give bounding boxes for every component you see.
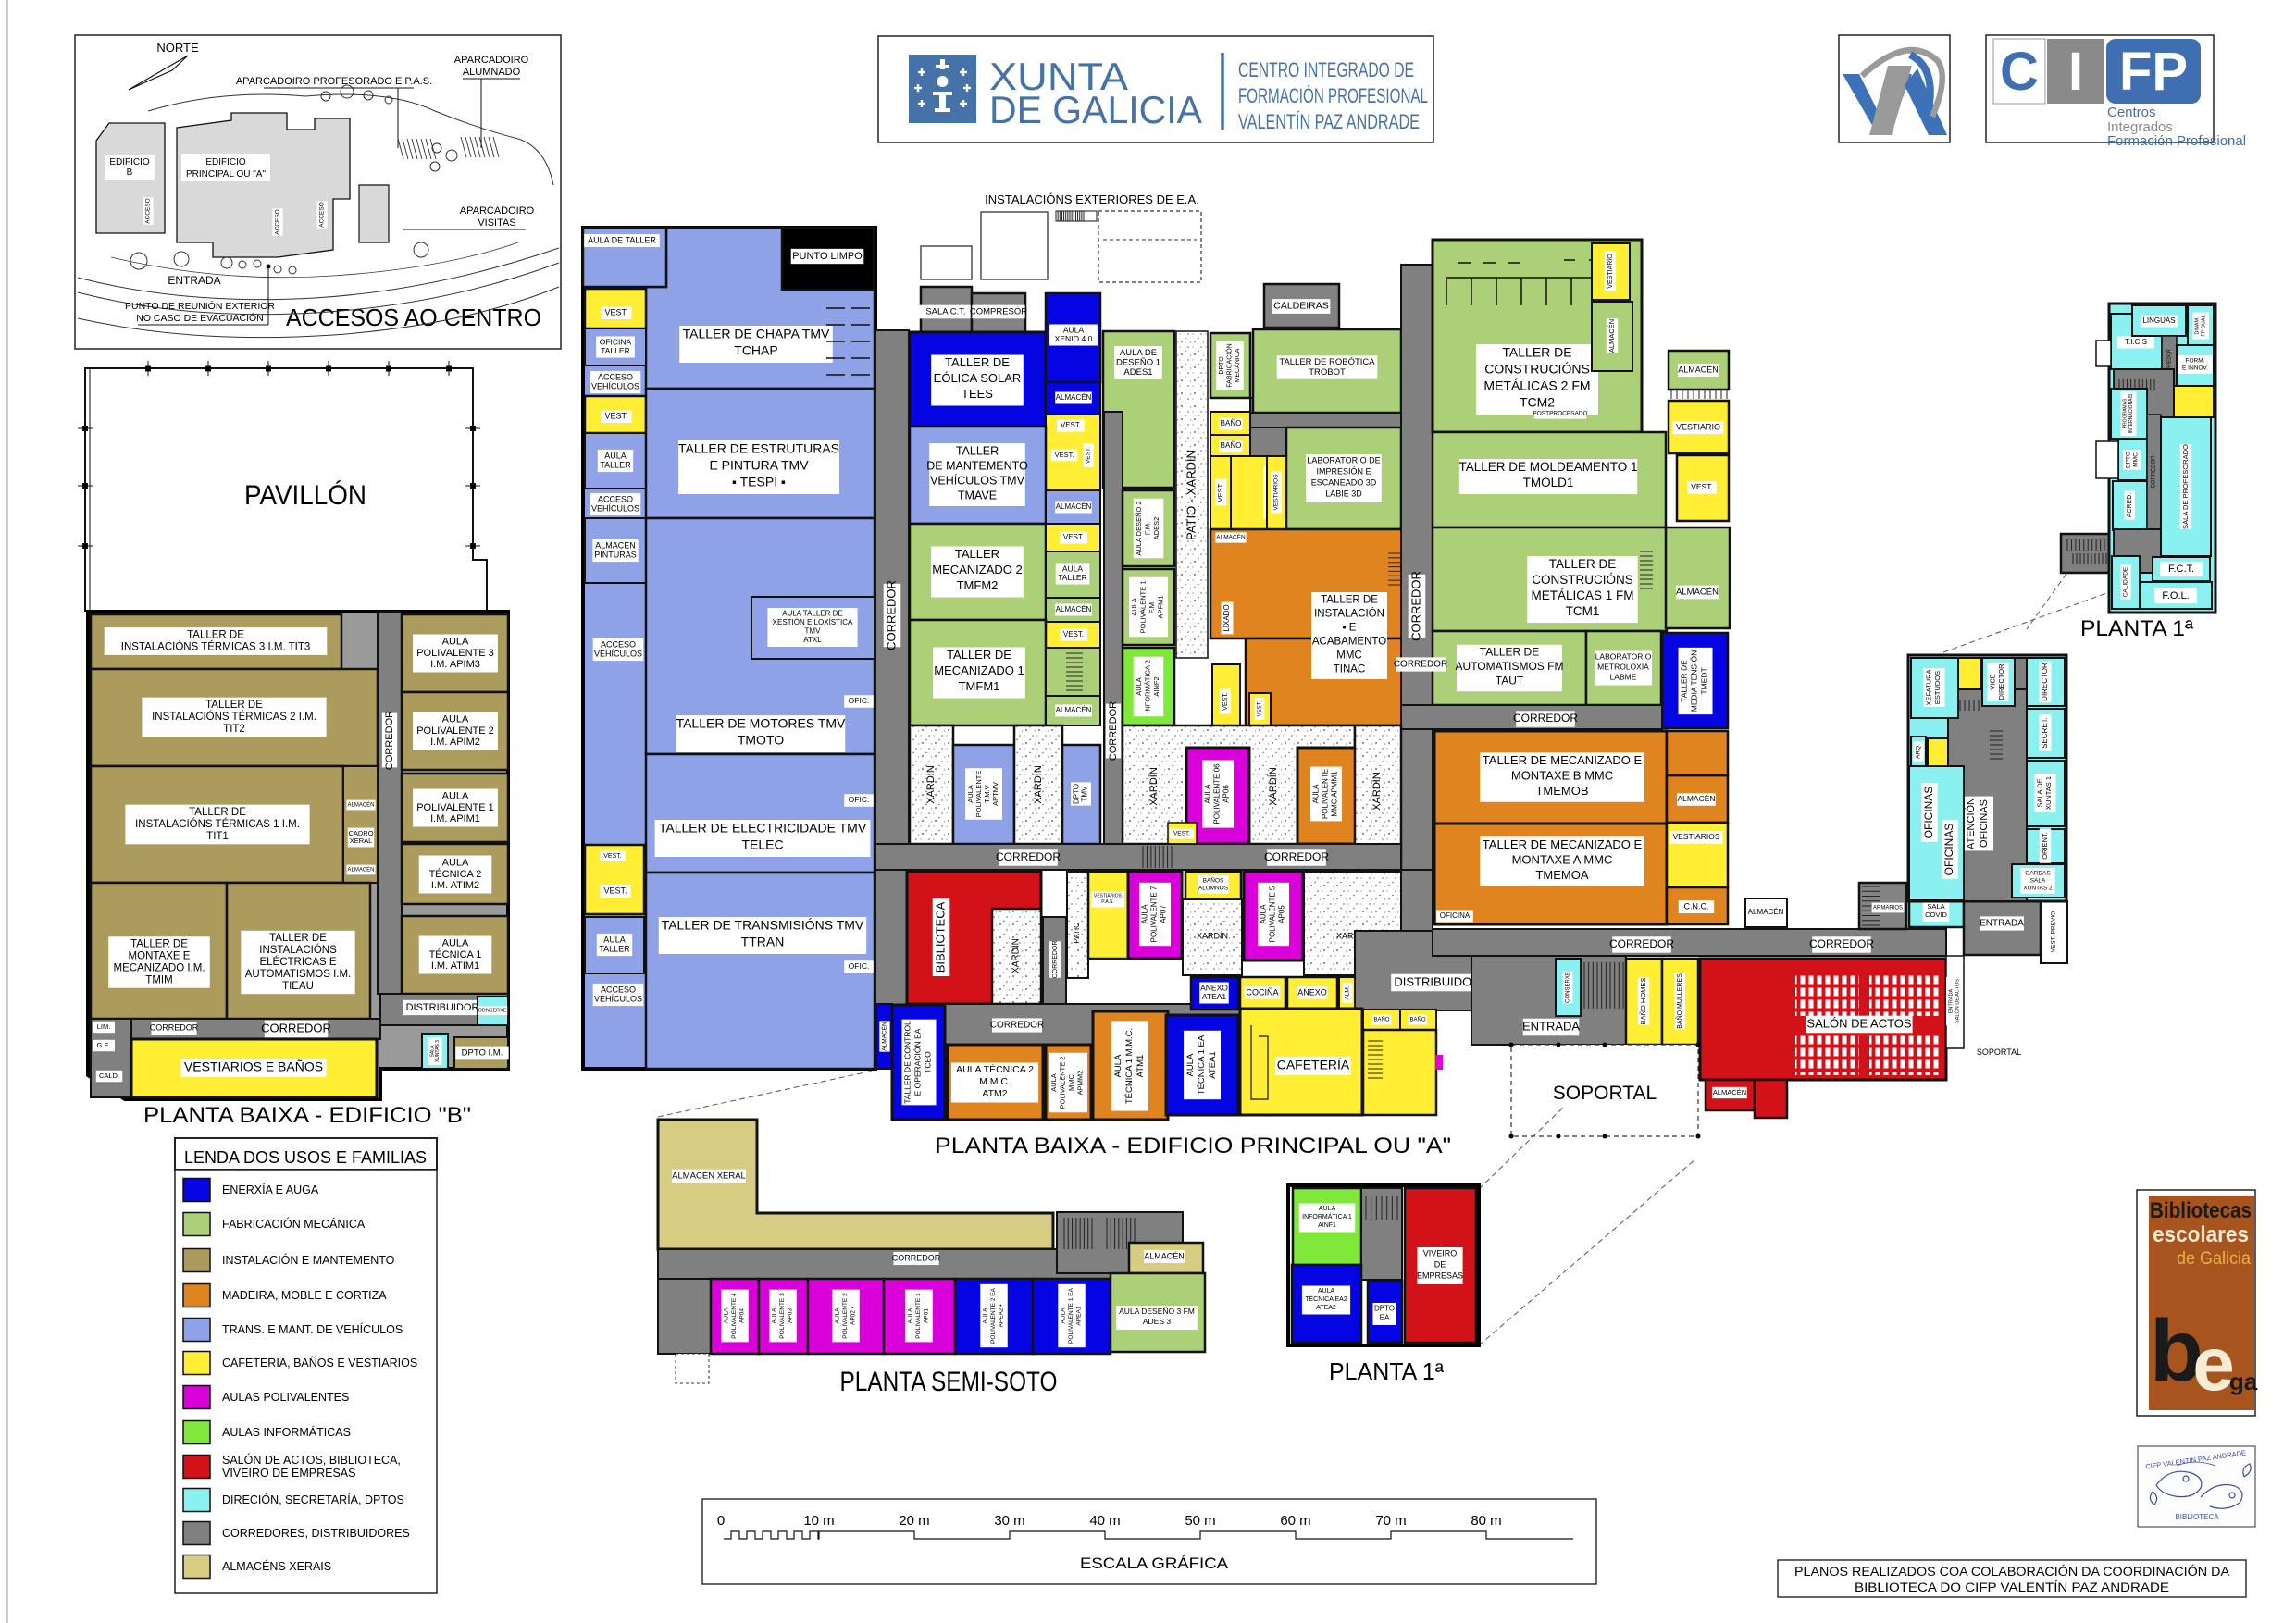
svg-text:TALLER DE: TALLER DE [1321, 594, 1378, 605]
svg-text:BAÑO: BAÑO [1221, 419, 1242, 427]
svg-text:AP04: AP04 [739, 1308, 746, 1323]
svg-text:ESCALA GRÁFICA: ESCALA GRÁFICA [1080, 1555, 1229, 1572]
svg-text:AULA DE TALLER: AULA DE TALLER [588, 235, 656, 244]
svg-text:ALMACÉN: ALMACÉN [347, 867, 374, 873]
svg-text:POLIVALENTE 1: POLIVALENTE 1 [416, 802, 494, 813]
svg-text:PLANOS REALIZADOS COA COLABORA: PLANOS REALIZADOS COA COLABORACIÓN DA CO… [1794, 1565, 2229, 1579]
svg-text:FP DUAL: FP DUAL [2202, 315, 2207, 336]
svg-text:ATENCIÓN: ATENCIÓN [1965, 798, 1977, 849]
svg-text:F.M.: F.M. [1148, 601, 1156, 613]
svg-text:CORREDOR: CORREDOR [1264, 850, 1329, 863]
svg-text:BAÑO HOMES: BAÑO HOMES [1639, 978, 1647, 1025]
svg-text:AUTOMATISMOS I.M.: AUTOMATISMOS I.M. [245, 969, 352, 980]
svg-text:ATM1: ATM1 [1136, 1055, 1146, 1078]
svg-text:EÓLICA SOLAR: EÓLICA SOLAR [934, 371, 1022, 385]
svg-text:EDIFICIO: EDIFICIO [205, 157, 246, 167]
svg-text:ARQ.: ARQ. [1916, 744, 1922, 759]
svg-text:ACABAMENTO: ACABAMENTO [1312, 636, 1386, 647]
svg-text:ALMACÉN: ALMACÉN [1748, 908, 1784, 916]
svg-text:TALLER DE: TALLER DE [269, 933, 327, 944]
svg-text:INTERNACIONAIS: INTERNACIONAIS [2128, 393, 2134, 433]
svg-text:AUTOMATISMOS FM: AUTOMATISMOS FM [1456, 660, 1564, 673]
svg-text:ALMACÉN: ALMACÉN [1676, 587, 1719, 597]
svg-text:I.M. APIM1: I.M. APIM1 [430, 813, 480, 824]
svg-text:PUNTO DE REUNIÓN EXTERIOR: PUNTO DE REUNIÓN EXTERIOR [125, 300, 275, 312]
svg-text:XEFATURA: XEFATURA [1925, 669, 1933, 705]
svg-text:COCIÑA: COCIÑA [1246, 987, 1278, 997]
svg-text:TALLER DE: TALLER DE [189, 807, 246, 818]
svg-text:CONSERXE: CONSERXE [1566, 972, 1571, 1003]
svg-text:ATXL: ATXL [803, 636, 822, 644]
svg-text:AULA: AULA [1185, 1053, 1196, 1076]
svg-text:AULA: AULA [442, 938, 469, 949]
svg-text:XENIO 4.0: XENIO 4.0 [1055, 334, 1093, 343]
svg-text:20 m: 20 m [899, 1513, 929, 1529]
svg-text:TMEMOB: TMEMOB [1535, 784, 1588, 798]
svg-text:BIBLIOTECA DO CIFP VALENTÍN PA: BIBLIOTECA DO CIFP VALENTÍN PAZ ANDRADE [1855, 1580, 2169, 1594]
svg-text:ADES1: ADES1 [1123, 367, 1152, 378]
svg-text:DPTO: DPTO [1374, 1305, 1395, 1313]
svg-text:I.M. ATIM1: I.M. ATIM1 [431, 960, 479, 972]
svg-text:TIEAU: TIEAU [282, 981, 314, 992]
svg-text:ORIENT.: ORIENT. [2041, 832, 2049, 860]
svg-text:AULA DESEÑO 2: AULA DESEÑO 2 [1135, 501, 1143, 555]
svg-text:FABRICACIÓN: FABRICACIÓN [1224, 343, 1233, 387]
svg-text:E INNOV.: E INNOV. [2182, 365, 2208, 371]
svg-text:DIRECIÓN, SECRETARÍA, DPTOS: DIRECIÓN, SECRETARÍA, DPTOS [222, 1493, 404, 1506]
svg-text:LABORATORIO: LABORATORIO [1595, 651, 1652, 661]
svg-text:TMOTO: TMOTO [738, 732, 784, 747]
svg-text:MONTAXE A MMC: MONTAXE A MMC [1512, 852, 1613, 866]
svg-text:TALLER DE: TALLER DE [1679, 660, 1688, 702]
svg-text:IMPRESIÓN E: IMPRESIÓN E [1316, 466, 1371, 476]
svg-text:VEST.: VEST. [1222, 692, 1229, 711]
svg-text:ALMACÉN: ALMACÉN [880, 1022, 888, 1051]
svg-text:T.I.C.S: T.I.C.S [2125, 338, 2147, 346]
svg-text:PLANTA BAIXA - EDIFICIO "B": PLANTA BAIXA - EDIFICIO "B" [143, 1103, 471, 1128]
svg-text:CORREDOR: CORREDOR [996, 850, 1061, 863]
svg-text:TMOLD1: TMOLD1 [1523, 476, 1574, 489]
svg-text:F.M.: F.M. [1143, 522, 1151, 535]
svg-text:MECÁNICA: MECÁNICA [1233, 348, 1241, 382]
svg-text:TALLER: TALLER [955, 547, 999, 561]
svg-text:PLANTA BAIXA - EDIFICIO PRINCI: PLANTA BAIXA - EDIFICIO PRINCIPAL OU "A" [935, 1134, 1451, 1158]
svg-text:ALMACÉN: ALMACÉN [1056, 605, 1092, 613]
svg-text:TÉCNICA 1: TÉCNICA 1 [429, 948, 482, 960]
svg-text:I.M. APIM3: I.M. APIM3 [430, 659, 480, 670]
svg-text:VEHÍCULOS TMV: VEHÍCULOS TMV [930, 473, 1025, 487]
svg-text:SALA C.T.: SALA C.T. [925, 306, 965, 316]
svg-text:ACCESO: ACCESO [145, 198, 152, 223]
svg-text:XARDÍN: XARDÍN [1371, 772, 1383, 811]
svg-text:LIXADO: LIXADO [1222, 604, 1231, 631]
svg-text:CONSERXE: CONSERXE [478, 1008, 507, 1013]
svg-text:POLIVALENTE: POLIVALENTE [974, 771, 983, 818]
svg-text:VEST.: VEST. [603, 853, 622, 860]
svg-text:POLIVALENTE 1 EA: POLIVALENTE 1 EA [1068, 1287, 1074, 1344]
svg-text:TALLER: TALLER [600, 460, 631, 469]
svg-text:POLIVALENTE 3: POLIVALENTE 3 [779, 1293, 786, 1339]
svg-text:ATEA2: ATEA2 [1316, 1305, 1336, 1311]
svg-text:AP06: AP06 [1222, 785, 1231, 803]
svg-text:VIVEIRO: VIVEIRO [1423, 1248, 1458, 1258]
svg-text:TALLER DE ROBÓTICA: TALLER DE ROBÓTICA [1279, 357, 1375, 367]
svg-text:TEES: TEES [962, 387, 993, 401]
svg-text:LENDA DOS USOS E FAMILIAS: LENDA DOS USOS E FAMILIAS [184, 1148, 427, 1167]
svg-text:ANEXO: ANEXO [1297, 987, 1327, 997]
svg-text:TIT2: TIT2 [223, 724, 245, 735]
svg-text:DPTO: DPTO [2125, 452, 2131, 468]
svg-text:TMV: TMV [805, 627, 822, 636]
svg-text:DINAM.: DINAM. [2195, 316, 2201, 335]
svg-text:PLANTA 1ª: PLANTA 1ª [2080, 616, 2193, 641]
svg-text:TIT1: TIT1 [206, 831, 229, 842]
svg-text:Bibliotecas: Bibliotecas [2150, 1198, 2252, 1223]
svg-text:PAVILLÓN: PAVILLÓN [244, 480, 366, 511]
svg-text:ALMACÉN: ALMACÉN [1216, 533, 1246, 541]
svg-text:AULA: AULA [1130, 598, 1138, 616]
svg-text:MMC: MMC [1067, 1073, 1075, 1090]
svg-text:ALMACÉN: ALMACÉN [347, 802, 374, 809]
svg-text:T.M.V: T.M.V [983, 785, 991, 802]
svg-text:AULA DE: AULA DE [1120, 348, 1157, 358]
svg-text:VEST.: VEST. [603, 886, 627, 895]
svg-text:▪ E: ▪ E [1343, 622, 1357, 633]
svg-text:APEA1: APEA1 [1076, 1306, 1083, 1325]
svg-text:ELÉCTRICAS E: ELÉCTRICAS E [259, 956, 336, 968]
svg-text:escolares: escolares [2153, 1222, 2249, 1247]
svg-text:POLIVALENTE 2: POLIVALENTE 2 [1059, 1057, 1067, 1109]
svg-text:ACCESO: ACCESO [601, 639, 636, 649]
svg-text:BAÑO MULLERES: BAÑO MULLERES [1675, 973, 1683, 1029]
svg-text:METÁLICAS 1 FM: METÁLICAS 1 FM [1531, 588, 1633, 602]
svg-text:ENTRADA: ENTRADA [1949, 989, 1955, 1014]
svg-text:AULA DESEÑO 3 FM: AULA DESEÑO 3 FM [1119, 1307, 1195, 1316]
svg-text:▪ TESPI ▪: ▪ TESPI ▪ [732, 474, 786, 489]
svg-text:E OPERACIÓN EA: E OPERACIÓN EA [912, 1028, 922, 1096]
svg-text:LIM.: LIM. [97, 1022, 111, 1031]
svg-text:XARDÍN: XARDÍN [1032, 765, 1044, 804]
svg-text:PRINCIPAL OU "A": PRINCIPAL OU "A" [186, 169, 266, 180]
svg-text:BAÑOS: BAÑOS [1203, 875, 1224, 884]
svg-text:BAÑO: BAÑO [1373, 1017, 1389, 1023]
svg-text:APARCADOIRO PROFESORADO E P.A.: APARCADOIRO PROFESORADO E P.A.S. [236, 76, 432, 87]
svg-text:B: B [127, 167, 133, 178]
svg-text:AP03: AP03 [788, 1308, 794, 1323]
svg-text:VICE: VICE [1989, 674, 1997, 690]
svg-text:TALLER DE ESTRUTURAS: TALLER DE ESTRUTURAS [678, 440, 839, 455]
svg-text:TALLER DE: TALLER DE [1549, 557, 1617, 571]
svg-text:INSTALACIÓNS TÉRMICAS 2 I.M.: INSTALACIÓNS TÉRMICAS 2 I.M. [152, 711, 316, 723]
svg-text:ALMACÉN: ALMACÉN [1607, 319, 1616, 353]
svg-text:EA: EA [1380, 1314, 1390, 1322]
svg-text:TALLER DE MOTORES TMV: TALLER DE MOTORES TMV [676, 715, 846, 730]
svg-text:SALA DE PROFESORADO: SALA DE PROFESORADO [2181, 444, 2190, 529]
svg-text:OFICINA: OFICINA [600, 337, 632, 346]
svg-text:TMFM2: TMFM2 [957, 578, 999, 592]
svg-text:VEST.: VEST. [1063, 533, 1084, 541]
svg-text:ALMACÉN: ALMACÉN [1677, 794, 1715, 803]
svg-text:APMM2: APMM2 [1076, 1071, 1085, 1096]
svg-text:OFICINAS: OFICINAS [1922, 787, 1935, 839]
svg-text:POLIVALENTE 7: POLIVALENTE 7 [1150, 886, 1159, 942]
svg-text:POLIVALENTE 2: POLIVALENTE 2 [416, 725, 494, 737]
svg-text:VEHÍCULOS: VEHÍCULOS [591, 381, 639, 390]
svg-text:C: C [2000, 42, 2039, 102]
svg-text:COMPRESOR: COMPRESOR [970, 306, 1027, 316]
svg-text:C.N.C.: C.N.C. [1684, 901, 1709, 911]
svg-text:FORM.: FORM. [2186, 357, 2205, 364]
svg-text:AULA: AULA [1204, 784, 1212, 804]
svg-text:ALMACÉN: ALMACÉN [1678, 365, 1719, 374]
svg-text:40 m: 40 m [1089, 1513, 1120, 1529]
svg-text:INSTALACIÓNS EXTERIORES DE E.A: INSTALACIÓNS EXTERIORES DE E.A. [985, 192, 1199, 206]
svg-text:VEST.: VEST. [1173, 831, 1190, 837]
svg-text:MONTAXE B MMC: MONTAXE B MMC [1511, 768, 1613, 782]
svg-text:AULAS INFORMÁTICAS: AULAS INFORMÁTICAS [222, 1425, 351, 1439]
svg-text:PLANTA SEMI-SOTO: PLANTA SEMI-SOTO [840, 1367, 1058, 1397]
svg-text:Centros: Centros [2107, 105, 2156, 120]
svg-text:ACCESO: ACCESO [319, 202, 326, 227]
svg-text:VEST.: VEST. [1086, 447, 1092, 464]
svg-text:0: 0 [717, 1513, 725, 1529]
svg-text:ESCANEADO 3D: ESCANEADO 3D [1311, 477, 1377, 487]
svg-text:TMV: TMV [1081, 786, 1089, 802]
svg-text:ARMARIOS: ARMARIOS [1873, 906, 1903, 911]
svg-text:SALA DE: SALA DE [2036, 778, 2044, 807]
svg-text:AULA: AULA [1113, 1054, 1123, 1077]
svg-text:AULA: AULA [724, 1307, 730, 1324]
svg-text:AULA: AULA [1135, 677, 1143, 696]
svg-text:TÉCNICA EA2: TÉCNICA EA2 [1305, 1295, 1347, 1303]
svg-text:CORREDOR: CORREDOR [1394, 660, 1447, 670]
svg-text:AULA: AULA [772, 1307, 778, 1324]
svg-text:ALM.: ALM. [1345, 985, 1351, 999]
svg-text:LINGUAS: LINGUAS [2142, 316, 2175, 325]
svg-text:OFIC.: OFIC. [849, 795, 870, 804]
svg-text:METROLOXÍA: METROLOXÍA [1597, 662, 1649, 671]
svg-text:ALUMNOS: ALUMNOS [1198, 885, 1229, 891]
svg-text:ESTUDOS: ESTUDOS [1933, 671, 1942, 704]
svg-text:AULA: AULA [1141, 904, 1149, 924]
svg-text:I: I [2068, 42, 2083, 102]
svg-text:I.M. ATIM2: I.M. ATIM2 [431, 880, 479, 891]
svg-text:TÉCNICA 1 EA: TÉCNICA 1 EA [1197, 1035, 1207, 1095]
svg-text:TROBOT: TROBOT [1309, 367, 1346, 378]
svg-text:MECANIZADO 1: MECANIZADO 1 [934, 663, 1024, 677]
svg-text:VALENTÍN PAZ ANDRADE: VALENTÍN PAZ ANDRADE [1238, 110, 1420, 133]
svg-text:AP07: AP07 [1160, 905, 1168, 923]
svg-text:AULA: AULA [442, 637, 469, 648]
svg-text:VEST. PREVIO: VEST. PREVIO [2051, 911, 2057, 952]
svg-text:TALLER DE: TALLER DE [945, 355, 1010, 369]
svg-text:ACCESO: ACCESO [598, 494, 633, 503]
svg-text:CORREDOR: CORREDOR [1052, 941, 1059, 979]
svg-text:DPTO I.M.: DPTO I.M. [462, 1047, 503, 1058]
svg-text:COVID: COVID [1925, 911, 1947, 919]
svg-text:CALIDADE: CALIDADE [2123, 566, 2129, 597]
svg-text:VEST.: VEST. [1055, 451, 1074, 459]
svg-text:FABRICACIÓN MECÁNICA: FABRICACIÓN MECÁNICA [222, 1217, 366, 1231]
svg-text:TMEDT: TMEDT [1699, 667, 1708, 694]
svg-text:DIRECTOR: DIRECTOR [2041, 663, 2049, 701]
svg-text:MMC: MMC [1336, 650, 1361, 661]
svg-text:ACCESOS AO CENTRO: ACCESOS AO CENTRO [286, 304, 541, 331]
svg-text:AP05: AP05 [1278, 905, 1286, 923]
svg-text:XARDÍN: XARDÍN [925, 765, 937, 804]
svg-text:ATM2: ATM2 [982, 1088, 1007, 1099]
svg-text:OFIC.: OFIC. [849, 961, 870, 971]
svg-text:POSTPROCESADO: POSTPROCESADO [1533, 411, 1587, 417]
svg-text:VESTIARIOS: VESTIARIOS [1672, 832, 1719, 841]
svg-text:10 m: 10 m [803, 1513, 834, 1529]
svg-text:CORREDOR: CORREDOR [892, 1253, 941, 1262]
svg-text:CONSTRUCIÓNS: CONSTRUCIÓNS [1532, 573, 1633, 587]
svg-text:POLIVALENTE 3: POLIVALENTE 3 [416, 648, 494, 659]
svg-text:AULA: AULA [1312, 784, 1321, 804]
svg-text:TRANS. E MANT. DE VEHÍCULOS: TRANS. E MANT. DE VEHÍCULOS [222, 1322, 403, 1336]
svg-text:DE MANTEMENTO: DE MANTEMENTO [926, 459, 1028, 472]
svg-text:DPTO: DPTO [1073, 784, 1081, 804]
svg-text:DIRECTOR: DIRECTOR [1997, 663, 2005, 700]
svg-text:AULA: AULA [1062, 564, 1084, 573]
svg-text:VIVEIRO DE EMPRESAS: VIVEIRO DE EMPRESAS [222, 1467, 355, 1480]
svg-text:SALA: SALA [2030, 877, 2046, 884]
svg-text:TALLER DE: TALLER DE [187, 630, 244, 641]
svg-text:CAFETERÍA, BAÑOS E VESTIARIOS: CAFETERÍA, BAÑOS E VESTIARIOS [222, 1356, 417, 1369]
svg-text:INSTALACIÓNS TÉRMICAS 3 I.M.: INSTALACIÓNS TÉRMICAS 3 I.M. TIT3 [121, 640, 310, 652]
svg-text:CENTRO INTEGRADO DE: CENTRO INTEGRADO DE [1238, 58, 1414, 81]
svg-text:TCHAP: TCHAP [734, 342, 777, 357]
svg-text:ALMACÉN: ALMACÉN [595, 540, 636, 550]
svg-text:APARCADOIRO: APARCADOIRO [460, 205, 535, 217]
svg-text:AULA: AULA [604, 451, 627, 460]
svg-text:AP02 ▪: AP02 ▪ [850, 1307, 857, 1325]
svg-text:TMEMOA: TMEMOA [1535, 868, 1588, 882]
svg-text:CORREDOR: CORREDOR [384, 711, 395, 770]
svg-text:TCM2: TCM2 [1520, 394, 1555, 409]
svg-text:EMPRESAS: EMPRESAS [1417, 1270, 1463, 1280]
svg-text:TALLER DE MOLDEAMENTO 1: TALLER DE MOLDEAMENTO 1 [1458, 460, 1637, 474]
svg-text:CALD.: CALD. [99, 1072, 119, 1080]
svg-text:CORREDOR: CORREDOR [1409, 571, 1422, 641]
svg-text:INSTALACIÓNS: INSTALACIÓNS [259, 944, 337, 956]
svg-text:TALLER DE MECANIZADO E: TALLER DE MECANIZADO E [1483, 753, 1643, 767]
svg-text:VEST.: VEST. [1063, 630, 1084, 638]
svg-text:AULA: AULA [442, 791, 469, 802]
svg-text:CAFETERÍA: CAFETERÍA [1277, 1058, 1350, 1072]
svg-text:DESEÑO 1: DESEÑO 1 [1116, 357, 1160, 367]
svg-text:AULA: AULA [603, 935, 626, 944]
svg-text:POLIVALENTE 1: POLIVALENTE 1 [915, 1293, 922, 1339]
svg-text:AULA: AULA [1049, 1073, 1058, 1092]
svg-text:ADES2: ADES2 [1152, 517, 1160, 540]
svg-text:TCM1: TCM1 [1566, 604, 1600, 618]
svg-text:M.M.C.: M.M.C. [979, 1076, 1011, 1087]
svg-text:CORREDOR: CORREDOR [2152, 455, 2157, 489]
svg-text:30 m: 30 m [994, 1513, 1024, 1529]
svg-text:OFICINA: OFICINA [1440, 911, 1471, 920]
svg-text:LABIE 3D: LABIE 3D [1325, 489, 1362, 498]
svg-text:AP01: AP01 [924, 1308, 930, 1323]
svg-text:CALDEIRAS: CALDEIRAS [1273, 301, 1329, 312]
svg-text:XESTIÓN E LOXÍSTICA: XESTIÓN E LOXÍSTICA [773, 618, 853, 626]
svg-text:CORREDOR: CORREDOR [1513, 712, 1578, 725]
svg-text:CORREDOR: CORREDOR [150, 1022, 199, 1032]
svg-text:MADEIRA, MOBLE E CORTIZA: MADEIRA, MOBLE E CORTIZA [222, 1289, 387, 1302]
svg-text:VEHÍCULOS: VEHÍCULOS [594, 994, 642, 1003]
svg-text:XARDÍN: XARDÍN [1148, 767, 1160, 806]
svg-text:G.E.: G.E. [96, 1041, 110, 1049]
svg-text:F.C.T.: F.C.T. [2168, 564, 2194, 575]
svg-text:AULA TÉCNICA 2: AULA TÉCNICA 2 [956, 1063, 1034, 1075]
svg-text:MECANIZADO 2: MECANIZADO 2 [932, 563, 1023, 576]
svg-text:AULA: AULA [442, 858, 469, 869]
svg-text:ATEA1: ATEA1 [1208, 1051, 1218, 1078]
svg-text:TINAC: TINAC [1334, 663, 1366, 675]
svg-text:TELEC: TELEC [741, 836, 783, 851]
svg-text:VEST.: VEST. [1258, 700, 1263, 716]
svg-text:TCEO: TCEO [923, 1051, 932, 1073]
svg-text:POLIVALENTE 5: POLIVALENTE 5 [1269, 886, 1277, 942]
svg-text:TALLER DE MECANIZADO E: TALLER DE MECANIZADO E [1483, 837, 1643, 851]
svg-text:CORREDOR: CORREDOR [1609, 937, 1674, 950]
svg-text:BAÑO: BAÑO [1409, 1017, 1425, 1023]
svg-text:ENTRADA: ENTRADA [1522, 1019, 1580, 1033]
svg-text:XUNTAS 2: XUNTAS 2 [2023, 885, 2053, 891]
svg-text:CORREDOR: CORREDOR [1809, 937, 1874, 950]
svg-text:ALMACÉN: ALMACÉN [1713, 1088, 1746, 1096]
svg-text:XARDÍN: XARDÍN [1197, 931, 1228, 940]
svg-text:SALÓN DE ACTOS, BIBLIOTECA,: SALÓN DE ACTOS, BIBLIOTECA, [222, 1453, 401, 1467]
svg-text:MECANIZADO I.M.: MECANIZADO I.M. [113, 962, 205, 973]
svg-text:CORREDOR: CORREDOR [990, 1021, 1044, 1031]
svg-text:TALLER DE TRANSMISIÓNS TMV: TALLER DE TRANSMISIÓNS TMV [662, 917, 864, 932]
svg-text:CONSTRUCIÓNS: CONSTRUCIÓNS [1484, 361, 1590, 376]
svg-text:DPTO: DPTO [1219, 356, 1225, 375]
svg-text:ACCESO: ACCESO [598, 372, 633, 381]
svg-text:TÉCNICA 2: TÉCNICA 2 [429, 868, 482, 880]
svg-text:AULA: AULA [1063, 325, 1085, 334]
svg-text:ga: ga [2229, 1368, 2258, 1395]
svg-text:ADES 3: ADES 3 [1143, 1317, 1172, 1326]
svg-text:VISITAS: VISITAS [478, 217, 515, 229]
svg-text:INSTALACIÓNS TÉRMICAS 1 I.M.: INSTALACIÓNS TÉRMICAS 1 I.M. [135, 818, 300, 830]
svg-text:AULA: AULA [835, 1307, 841, 1324]
svg-text:AULA TALLER DE: AULA TALLER DE [782, 610, 843, 618]
svg-text:NO CASO DE EVACUACIÓN: NO CASO DE EVACUACIÓN [136, 312, 264, 324]
svg-text:INFORMÁTICA 2: INFORMÁTICA 2 [1143, 660, 1151, 713]
svg-text:XARDÍN: XARDÍN [1267, 767, 1279, 806]
svg-text:ALMACÉN: ALMACÉN [1056, 393, 1092, 402]
svg-text:de Galicia: de Galicia [2177, 1249, 2251, 1269]
svg-text:ALUMNADO: ALUMNADO [463, 67, 521, 78]
svg-text:SOPORTAL: SOPORTAL [1553, 1083, 1657, 1104]
svg-text:TÉCNICA 1 M.M.C.: TÉCNICA 1 M.M.C. [1124, 1028, 1135, 1104]
svg-text:TALLER: TALLER [1058, 573, 1087, 582]
svg-text:TALLER DE ELECTRICIDADE TMV: TALLER DE ELECTRICIDADE TMV [659, 820, 867, 835]
svg-text:CORREDORES, DISTRIBUIDORES: CORREDORES, DISTRIBUIDORES [222, 1527, 410, 1540]
svg-text:DISTRIBUIDOR: DISTRIBUIDOR [1394, 974, 1480, 988]
svg-text:TMAVE: TMAVE [958, 489, 997, 502]
svg-text:OFICINAS: OFICINAS [1979, 799, 1990, 848]
svg-text:VEST.: VEST. [604, 411, 627, 420]
svg-text:AULA: AULA [1318, 1288, 1335, 1295]
svg-text:ENERXÍA E AUGA: ENERXÍA E AUGA [222, 1183, 319, 1196]
svg-text:I.M. APIM2: I.M. APIM2 [430, 737, 480, 748]
svg-text:AULAS POLIVALENTES: AULAS POLIVALENTES [222, 1391, 349, 1404]
svg-text:APEA2 ▪: APEA2 ▪ [999, 1304, 1005, 1327]
